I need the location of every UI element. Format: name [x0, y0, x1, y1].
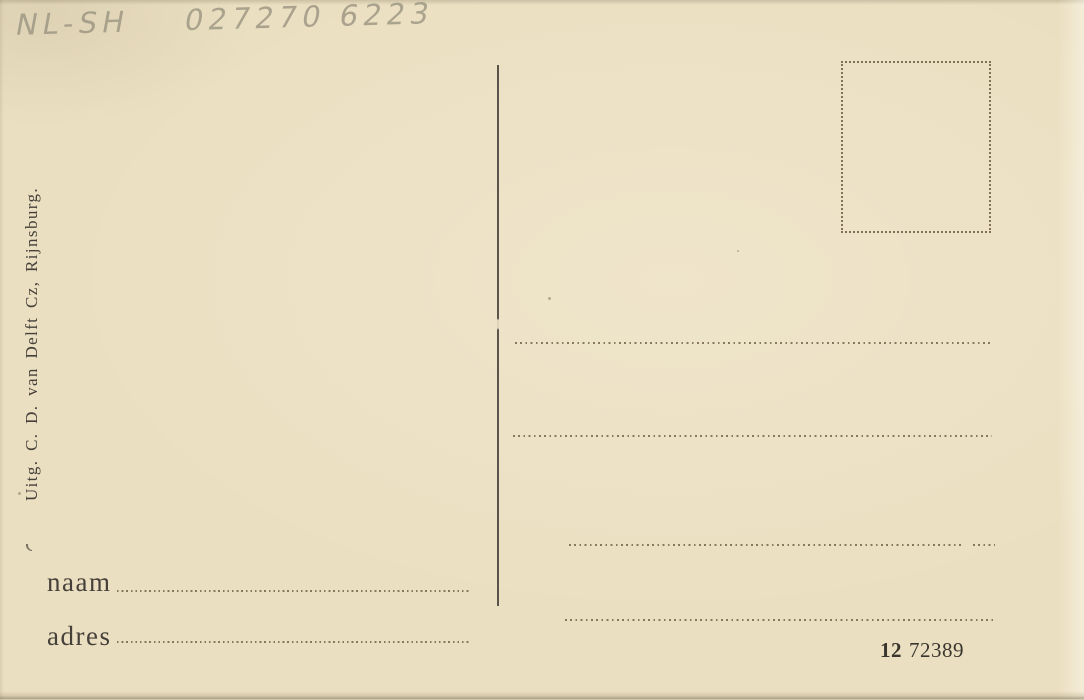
paper-speck	[18, 492, 21, 495]
paper-speck	[548, 297, 551, 300]
postcard-back: NL-SH 027270 6223 Uitg. C. D. van Delft …	[0, 0, 1084, 700]
name-field-label: naam	[47, 567, 111, 598]
address-field-dotted-line	[117, 641, 470, 643]
center-divider-line	[497, 65, 499, 606]
address-field-label: adres	[47, 621, 111, 652]
printer-number-code: 72389	[909, 638, 964, 662]
publisher-imprint: Uitg. C. D. van Delft Cz, Rijnsburg.	[22, 187, 42, 501]
paper-edge-left	[0, 0, 4, 700]
address-dotted-line-3-tail	[973, 544, 995, 546]
printer-number-series: 12	[880, 638, 902, 662]
handwritten-catalog-note: NL-SH 027270 6223	[16, 0, 435, 42]
stamp-box	[841, 61, 991, 233]
address-dotted-line-2	[513, 435, 992, 437]
name-field-dotted-line	[117, 590, 470, 592]
printer-number: 1272389	[880, 638, 964, 663]
address-dotted-line-4	[565, 619, 993, 621]
address-dotted-line-3	[569, 544, 963, 546]
paper-edge-bottom	[0, 691, 1084, 700]
handwritten-region-code: NL-SH	[13, 5, 132, 42]
handwritten-catalog-number: 027270 6223	[182, 0, 437, 37]
address-dotted-line-1	[515, 342, 991, 344]
paper-mark	[26, 544, 32, 551]
paper-speck	[737, 250, 739, 252]
paper-edge-right	[1058, 0, 1084, 700]
